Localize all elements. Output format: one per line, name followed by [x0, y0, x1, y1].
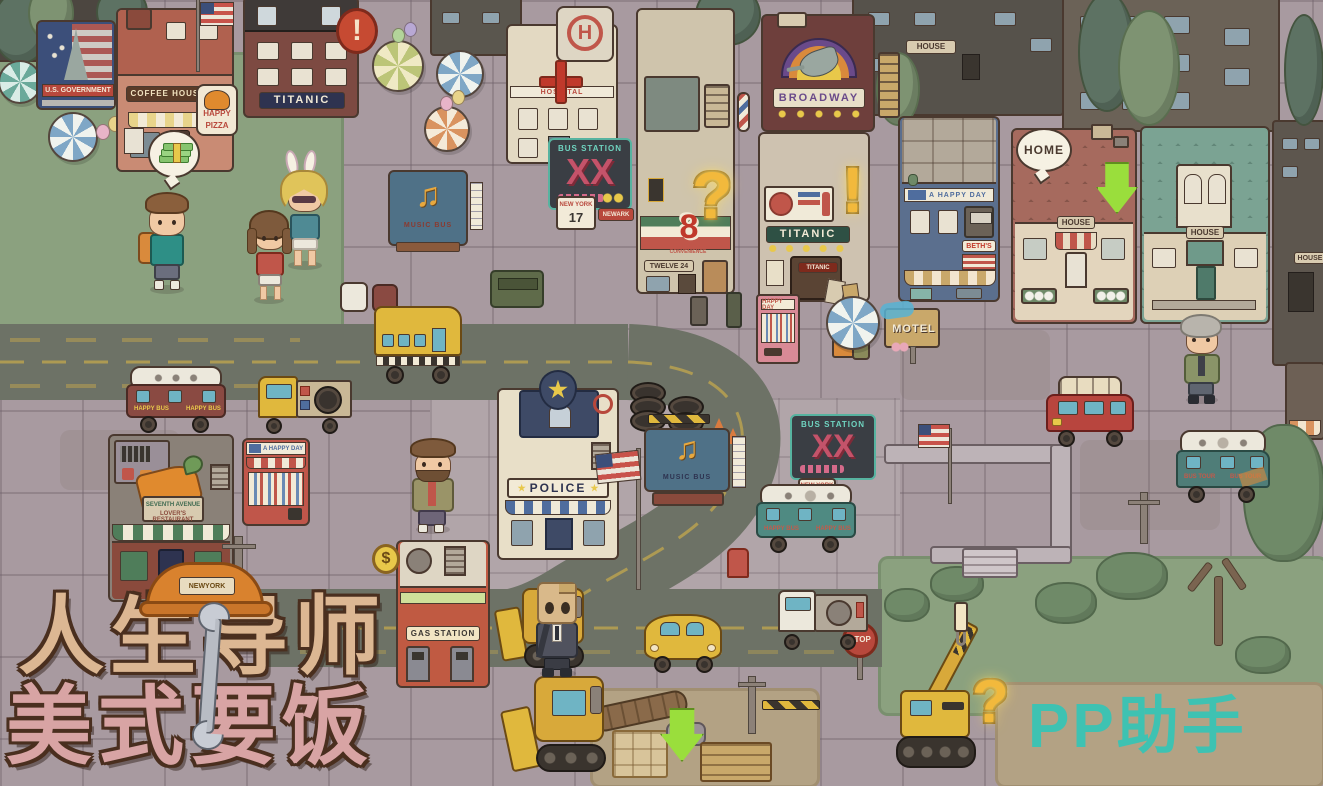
bottle-rows: [248, 472, 304, 506]
scaffold-ladder: [878, 52, 900, 118]
building-broadway[interactable]: BROADWAY: [761, 14, 875, 132]
music-note-icon: ♫: [646, 432, 728, 464]
dead-tree: [1192, 556, 1244, 648]
quest-exclaim-marker[interactable]: !: [842, 158, 863, 222]
balloon: [452, 90, 465, 105]
titanic-hotel-sign: TITANIC: [259, 92, 345, 109]
military-crate-truck: [490, 270, 544, 308]
us-flag: [200, 2, 234, 26]
marquee-lights: [773, 110, 865, 118]
building-beths[interactable]: A HAPPY DAY BETH'S: [898, 116, 1000, 302]
beths-sign: BETH'S: [962, 240, 996, 252]
poster: [648, 178, 664, 202]
building-8-convenience[interactable]: 8 CONVENIENCE TWELVE 24: [636, 8, 735, 294]
logo-line-2: 美式要饭: [6, 684, 374, 770]
motel-sign[interactable]: MOTEL: [884, 308, 940, 348]
broadway-marquee: BROADWAY: [773, 88, 865, 108]
xx-neon: XX: [550, 154, 630, 190]
umbrella: [372, 40, 424, 92]
marquee-lights: [766, 245, 850, 252]
yellow-beetle-car[interactable]: [644, 610, 724, 674]
stone-wall: [884, 444, 1072, 464]
graffiti-swirl: [879, 300, 915, 321]
flowers: [890, 340, 910, 354]
tire-stack: [630, 382, 670, 432]
umbrella: [826, 296, 880, 350]
bus-tour-bus[interactable]: BUS TOUR BUS TOUR: [1176, 430, 1270, 504]
character-backpack-boy[interactable]: [142, 194, 192, 294]
neon-scribble: [800, 465, 844, 473]
stone-fence: [1152, 300, 1256, 310]
bus-tour-label: BUS TOUR: [1184, 474, 1215, 480]
bench: [652, 492, 724, 506]
liberty-billboard[interactable]: U.S. GOVERNMENT: [36, 20, 116, 110]
umbrella: [424, 106, 470, 152]
trash-bin: [726, 292, 742, 328]
music-bus-label: MUSIC BUS: [390, 222, 466, 229]
balloon: [404, 22, 417, 37]
stage-poster-strip: [470, 182, 483, 230]
crane-hook: [956, 632, 966, 646]
us-flag: [595, 450, 642, 484]
cooler: [910, 288, 932, 300]
music-bus-label: MUSIC BUS: [646, 474, 728, 481]
hair: [410, 438, 456, 458]
porch-canopy: [1186, 240, 1224, 266]
building-happy-day-shop[interactable]: A HAPPY DAY: [242, 438, 310, 526]
alert-exclamation-marker[interactable]: !: [336, 8, 378, 54]
poster: [766, 260, 784, 286]
titanic-bar-sign: TITANIC: [766, 226, 850, 243]
potted-plant: [908, 174, 918, 186]
crane-tracks: [896, 736, 976, 768]
happy-bus-label: HAPPY BUS: [764, 526, 799, 532]
happy-bus-label: HAPPY BUS: [186, 406, 221, 412]
gray-hair: [1180, 314, 1222, 338]
mailbox: [690, 296, 708, 326]
house-sign: HOUSE: [906, 40, 956, 54]
house-teal-sign: HOUSE: [1186, 226, 1224, 239]
happy-day-shop-banner: A HAPPY DAY: [263, 446, 303, 452]
happy-bus-label: HAPPY BUS: [134, 406, 169, 412]
happy-bus-label: HAPPY BUS: [816, 526, 851, 532]
game-logo: 人生导师 美式要饭 NEWYORK: [6, 566, 446, 786]
tree: [1284, 14, 1323, 126]
traffic-barrier: [762, 700, 820, 710]
newark-sign: NEWARK: [598, 208, 634, 221]
character-bearded-man[interactable]: [406, 438, 460, 534]
fuel-pump: [450, 646, 474, 682]
game-viewport: HOUSE HOUSE U.S. GOVERNMENT: [0, 0, 1323, 786]
hard-hat-badge: NEWYORK: [179, 577, 235, 595]
happy-pizza-sign[interactable]: HAPPY PIZZA: [196, 84, 238, 136]
red-cross-icon: [555, 60, 567, 104]
coin-lights: [602, 193, 624, 203]
door: [1065, 252, 1087, 288]
sunglasses: [292, 196, 316, 203]
stone-steps: [962, 548, 1018, 578]
building-house-teal[interactable]: HOUSE: [1140, 126, 1270, 324]
crane-hook-block: [954, 602, 968, 632]
pp-assistant-watermark: PP助手: [1028, 696, 1247, 758]
no-entry-icon: [593, 394, 613, 414]
character-old-man[interactable]: [1178, 318, 1226, 404]
utility-truck[interactable]: [778, 584, 872, 650]
hospital-helipad: H: [556, 6, 614, 62]
tree: [1118, 10, 1180, 126]
twelve24-plaque: TWELVE 24: [644, 260, 694, 272]
music-bus-stage-a[interactable]: ♫ MUSIC BUS: [388, 170, 468, 246]
door: [962, 54, 980, 80]
parked-car: [340, 282, 368, 312]
crane[interactable]: [890, 580, 982, 780]
red-camper-van[interactable]: [1046, 376, 1136, 448]
door: [1288, 272, 1314, 312]
delivery-truck-back: [964, 206, 994, 238]
flower-bed: [1093, 288, 1129, 304]
taxi-bus[interactable]: [374, 306, 468, 394]
house-red-sign: HOUSE: [1057, 216, 1095, 229]
rooftop-unit: [1091, 124, 1113, 140]
paper-bag-head: [537, 582, 577, 624]
checker-band: [376, 356, 460, 366]
hair: [145, 192, 189, 214]
coin-slot: [288, 508, 302, 520]
bulldozer[interactable]: [512, 668, 612, 784]
restaurant-plaque: SEVENTH AVENUE LOVER'S RESTAURANT: [142, 496, 204, 522]
stone-blocks: [612, 730, 668, 778]
rooftop-unit: [1113, 136, 1129, 148]
music-bus-stage-b[interactable]: ♫ MUSIC BUS: [644, 428, 730, 492]
happy-bus-teal[interactable]: HAPPY BUS HAPPY BUS: [756, 484, 856, 554]
flatbed-truck[interactable]: [258, 372, 354, 438]
police-sign: POLICE: [530, 482, 587, 494]
beard: [416, 470, 450, 482]
bush: [1035, 582, 1097, 624]
quest-question-marker[interactable]: ?: [692, 162, 732, 228]
house-sign: HOUSE: [1294, 252, 1323, 264]
billboard-label: U.S. GOVERNMENT: [42, 84, 114, 97]
us-flag: [918, 424, 950, 448]
bush: [1096, 552, 1168, 600]
flower-bed: [1021, 288, 1057, 304]
home-bubble[interactable]: HOME: [1016, 128, 1072, 172]
character-bunny-girl[interactable]: [278, 168, 330, 270]
fire-hydrant: [727, 548, 749, 578]
plank-pile: [700, 742, 772, 782]
happy-bus-brown[interactable]: HAPPY BUS HAPPY BUS: [126, 366, 226, 436]
money-bubble[interactable]: [148, 130, 200, 178]
happy-day-banner: A HAPPY DAY: [929, 192, 987, 199]
right-edge-building: HOUSE: [1272, 120, 1323, 366]
character-paperbag-man[interactable]: [530, 582, 584, 678]
umbrella: [48, 112, 98, 162]
new-york-sign-a: NEW YORK 17: [556, 196, 596, 230]
bus-station-sign-b[interactable]: BUS STATION XX: [790, 414, 876, 480]
stage-poster-strip: [732, 436, 746, 488]
traffic-barrier: [648, 414, 710, 424]
happy-day-vending-machine[interactable]: HAPPY DAY: [756, 294, 800, 364]
xx-neon: XX: [792, 430, 874, 462]
menu-poster: [124, 128, 144, 154]
barber-pole: [737, 92, 750, 132]
music-note-icon: ♫: [390, 178, 466, 212]
door: [1196, 266, 1216, 300]
quest-question-marker[interactable]: ?: [972, 672, 1009, 732]
beths-info-lines: [962, 254, 996, 270]
vent-grille: [210, 464, 230, 490]
cola-billboard: [764, 186, 834, 222]
titanic-door-sign: TITANIC: [798, 262, 838, 273]
